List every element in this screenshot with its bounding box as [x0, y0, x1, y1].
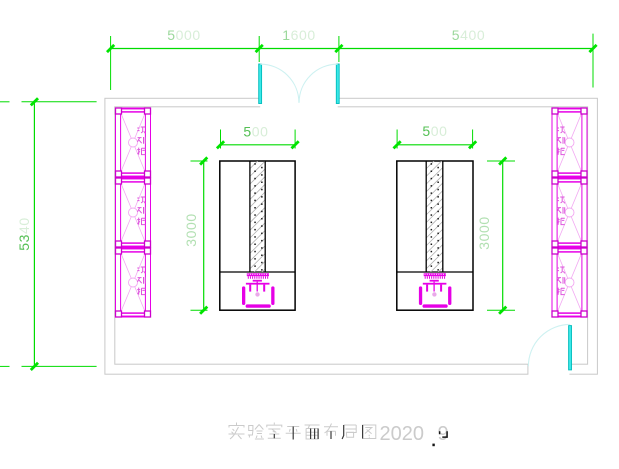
- svg-text:3000: 3000: [476, 216, 492, 250]
- svg-text:500: 500: [422, 123, 447, 139]
- svg-text:5340: 5340: [16, 217, 32, 251]
- svg-text:3000: 3000: [183, 213, 199, 247]
- svg-text:500: 500: [243, 124, 268, 140]
- svg-text:5000: 5000: [167, 27, 201, 43]
- svg-text:1600: 1600: [282, 27, 316, 43]
- svg-text:2020: 2020: [380, 423, 425, 445]
- svg-text:5400: 5400: [452, 27, 486, 43]
